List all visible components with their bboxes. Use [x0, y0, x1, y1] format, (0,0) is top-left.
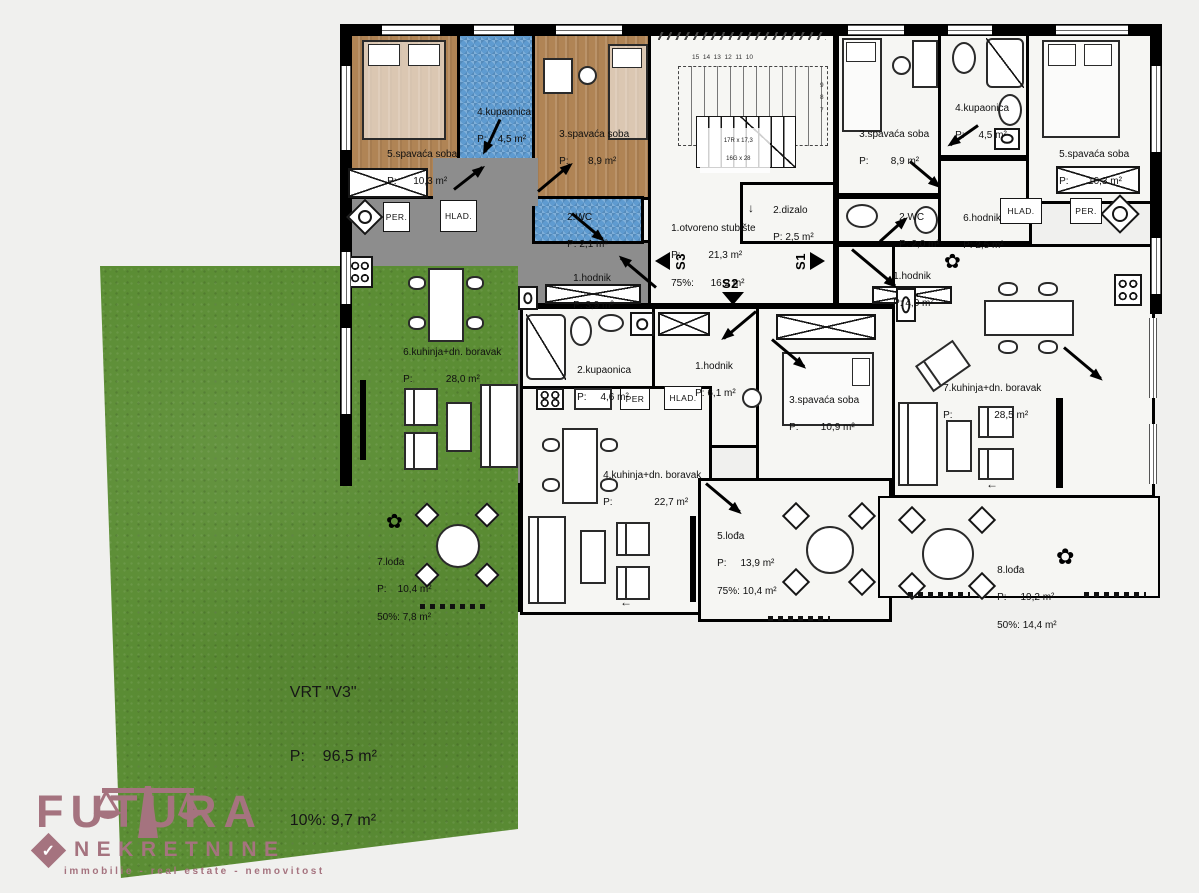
logo-balance-scale-icon — [88, 782, 206, 840]
entrance-label-s2: S2 — [722, 276, 739, 291]
window — [948, 25, 992, 35]
room-area: P: 4,5 m² — [955, 130, 1007, 141]
room-area: P: 2,5 m² — [773, 232, 814, 243]
fridge-text: HLAD. — [445, 211, 472, 221]
window — [1149, 318, 1157, 398]
room-area: P: 2,1 m² — [567, 239, 608, 250]
room-name: 1.hodnik — [893, 271, 931, 282]
room-name: 5.spavaća soba — [1059, 149, 1129, 160]
chair-icon — [892, 56, 911, 75]
room-name: 1.hodnik — [573, 273, 611, 284]
chair-icon — [542, 438, 560, 452]
terrace-table-icon — [436, 524, 480, 568]
room-name: 4.kupaonica — [955, 103, 1009, 114]
room-area: P: 4,6 m² — [577, 392, 629, 403]
stairs-side-step-numbers: 9 8 7 — [820, 80, 824, 117]
label-hall1-middle: 1.hodnik P: 6,1 m² — [684, 346, 736, 415]
logo-tagline: immobilie - real estate - nemovitost — [64, 866, 325, 877]
label-bathroom2-middle: 2.kupaonica P: 4,6 m² — [566, 350, 631, 419]
room-area: P: 10,3 m² — [387, 176, 447, 187]
chair-icon — [1038, 282, 1058, 296]
room-area-reduced: 50%: 14,4 m² — [997, 620, 1056, 631]
shower-glass-line — [986, 38, 1024, 88]
wardrobe-icon — [776, 314, 876, 340]
room-area: P: 2,0 m² — [899, 239, 940, 250]
tv-icon — [360, 380, 366, 460]
room-name: 6.kuhinja+dn. boravak — [403, 347, 501, 358]
stair-window-hatch — [658, 32, 826, 40]
stove-icon — [1114, 274, 1142, 306]
room-name: 4.kuhinja+dn. boravak — [603, 470, 701, 481]
fridge-text: HLAD. — [1007, 206, 1034, 216]
window — [1149, 424, 1157, 484]
room-area: P: 8,9 m² — [559, 156, 616, 167]
chair-icon — [542, 478, 560, 492]
room-area: P: 13,9 m² — [717, 558, 774, 569]
room-name: 2.WC — [567, 212, 592, 223]
label-bedroom5-left: 5.spavaća soba P: 10,3 m² — [376, 134, 457, 203]
label-elevator: 2.dizalo P: 2,5 m² — [762, 190, 814, 259]
room-area: P: 4,0 m² — [893, 298, 934, 309]
chair-icon — [742, 388, 762, 408]
balcony-sill-hatch — [768, 616, 830, 621]
label-living4-middle: 4.kuhinja+dn. boravak P: 22,7 m² — [592, 455, 701, 524]
entrance-arrow-s3 — [655, 252, 670, 270]
room-name: 1.otvoreno stubište — [671, 223, 756, 234]
window — [1151, 238, 1161, 294]
entrance-label-s3: S3 — [673, 253, 688, 270]
window — [848, 25, 904, 35]
tv-icon — [690, 516, 696, 602]
logo-check-diamond-icon: ✓ — [31, 833, 66, 868]
label-living6-left: 6.kuhinja+dn. boravak P: 28,0 m² — [392, 332, 501, 401]
fridge-label: HLAD. — [1000, 198, 1042, 224]
label-bedroom3-middle: 3.spavaća soba P: 10,9 m² — [778, 380, 859, 449]
room-name: 6.hodnik — [963, 213, 1001, 224]
armchair-icon — [404, 432, 438, 470]
stairs-riser-note: 17R x 17,3 — [724, 138, 753, 144]
stairs-going-note: 16G x 28 — [726, 156, 750, 162]
room-name: 2.kupaonica — [577, 365, 631, 376]
label-hall1-right: 1.hodnik P: 4,0 m² — [882, 256, 934, 325]
room-area: P: 6,1 m² — [695, 388, 736, 399]
exit-arrow: ← — [986, 478, 998, 490]
label-hall1-left: 1.hodnik P: 3,9 m² — [562, 258, 614, 327]
chair-icon — [466, 316, 484, 330]
armchair-icon — [978, 448, 1014, 480]
room-area: P: 8,9 m² — [859, 156, 919, 167]
window — [341, 328, 351, 414]
logo-subtitle: NEKRETNINE — [74, 838, 286, 862]
window — [1151, 66, 1161, 152]
room-area: P: 10,4 m² — [377, 584, 431, 595]
chair-icon — [578, 66, 597, 85]
label-loggia8-right: 8.lođa P: 19,2 m² 50%: 14,4 m² — [986, 550, 1057, 647]
room-area-reduced: 75%: 10,4 m² — [717, 586, 776, 597]
washer-label: PER. — [383, 202, 410, 232]
room-area: P: 10,3 m² — [1059, 176, 1122, 187]
label-loggia5-middle: 5.lođa P: 13,9 m² 75%: 10,4 m² — [706, 516, 777, 613]
pillow-icon — [408, 44, 440, 66]
chair-icon — [998, 282, 1018, 296]
room-name: 5.lođa — [717, 531, 744, 542]
room-area: P: 4,5 m² — [477, 134, 526, 145]
chair-icon — [408, 276, 426, 290]
window — [1056, 25, 1128, 35]
room-name: 1.hodnik — [695, 361, 733, 372]
stairs-upper-step-numbers: 15 14 13 12 11 10 — [692, 54, 753, 61]
room-name: 3.spavaća soba — [859, 129, 929, 140]
room-name: 2.dizalo — [773, 205, 807, 216]
coffee-table-icon — [580, 530, 606, 584]
pillow-icon — [1048, 44, 1076, 66]
fridge-label: HLAD. — [440, 200, 477, 232]
desk-icon — [543, 58, 573, 94]
window — [556, 25, 622, 35]
room-name: 8.lođa — [997, 565, 1024, 576]
armchair-icon — [616, 522, 650, 556]
window — [341, 66, 351, 150]
room-area: P: 3,9 m² — [573, 300, 614, 311]
chair-icon — [998, 340, 1018, 354]
dining-table-icon — [984, 300, 1074, 336]
chair-icon — [600, 438, 618, 452]
room-area: P: 10,9 m² — [789, 422, 855, 433]
chair-icon — [466, 276, 484, 290]
balcony-sill-hatch — [1084, 592, 1146, 597]
tv-icon — [1056, 398, 1063, 488]
chair-icon — [1038, 340, 1058, 354]
label-bedroom5-right: 5.spavaća soba P: 10,3 m² — [1048, 134, 1129, 203]
room-area: P: 22,7 m² — [603, 497, 688, 508]
wardrobe-icon — [658, 312, 710, 336]
chair-icon — [408, 316, 426, 330]
garden-name: VRT "V3" — [290, 684, 357, 701]
toilet-icon — [952, 42, 976, 74]
label-living7-right: 7.kuhinja+dn. boravak P: 28,5 m² — [932, 368, 1041, 437]
label-bedroom3-left: 3.spavaća soba P: 8,9 m² — [548, 114, 629, 183]
terrace-table-icon — [922, 528, 974, 580]
pillow-icon — [368, 44, 400, 66]
dining-table-icon — [428, 268, 464, 342]
room-name: 5.spavaća soba — [387, 149, 457, 160]
label-hall6-right: 6.hodnik P: 2,5 m² — [952, 198, 1004, 267]
exit-arrow: ← — [620, 596, 632, 608]
coffee-table-icon — [446, 402, 472, 452]
window — [382, 25, 440, 35]
entrance-arrow-s1 — [810, 252, 825, 270]
entrance-label-s1: S1 — [793, 253, 808, 270]
stairs-note: 17R x 17,3 16G x 28 — [700, 128, 770, 173]
sofa-icon — [528, 516, 566, 604]
label-wc2-left: 2.WC P: 2,1 m² — [556, 197, 608, 266]
room-name: 7.kuhinja+dn. boravak — [943, 383, 1041, 394]
room-area: P: 28,5 m² — [943, 410, 1028, 421]
shower-glass-line — [526, 314, 566, 380]
pillow-icon — [612, 48, 642, 68]
pillow-icon — [1084, 44, 1112, 66]
room-area: P: 2,5 m² — [963, 240, 1004, 251]
entrance-arrow-s2 — [722, 292, 744, 305]
stove-icon — [536, 388, 564, 410]
label-bathroom4-left: 4.kupaonica P: 4,5 m² — [466, 92, 531, 161]
balcony-sill-hatch — [908, 592, 970, 597]
room-name: 7.lođa — [377, 557, 404, 568]
room-name: 2.WC — [899, 212, 924, 223]
washing-machine-icon — [518, 286, 538, 310]
toilet-icon — [846, 204, 878, 228]
garden-label: VRT "V3" P: 96,5 m² 10%: 9,7 m² — [272, 645, 377, 869]
room-area: P: 19,2 m² — [997, 592, 1054, 603]
room-name: 3.spavaća soba — [789, 395, 859, 406]
window — [341, 252, 351, 304]
room-area-reduced: 50%: 7,8 m² — [377, 612, 431, 623]
washer-text: PER. — [386, 212, 407, 222]
garden-area-value: P: 96,5 m² — [290, 748, 377, 765]
window — [474, 25, 514, 35]
room-area: P: 28,0 m² — [403, 374, 480, 385]
plant-icon: ✿ — [386, 512, 403, 532]
washing-machine-icon — [630, 312, 654, 336]
terrace-table-icon — [806, 526, 854, 574]
label-loggia7-left: 7.lođa P: 10,4 m² 50%: 7,8 m² — [366, 542, 432, 639]
floor-plan-canvas: VRT "V3" P: 96,5 m² 10%: 9,7 m² PER. HLA… — [0, 0, 1199, 893]
plant-icon: ✿ — [1056, 546, 1074, 568]
garden-reduced-value: 10%: 9,7 m² — [290, 812, 376, 829]
label-bathroom4-right: 4.kupaonica P: 4,5 m² — [944, 88, 1009, 157]
room-name: 3.spavaća soba — [559, 129, 629, 140]
washer-text: PER. — [1075, 206, 1096, 216]
room-name: 4.kupaonica — [477, 107, 531, 118]
label-bedroom3-right: 3.spavaća soba P: 8,9 m² — [848, 114, 929, 183]
desk-icon — [912, 40, 938, 88]
pillow-icon — [846, 42, 876, 62]
